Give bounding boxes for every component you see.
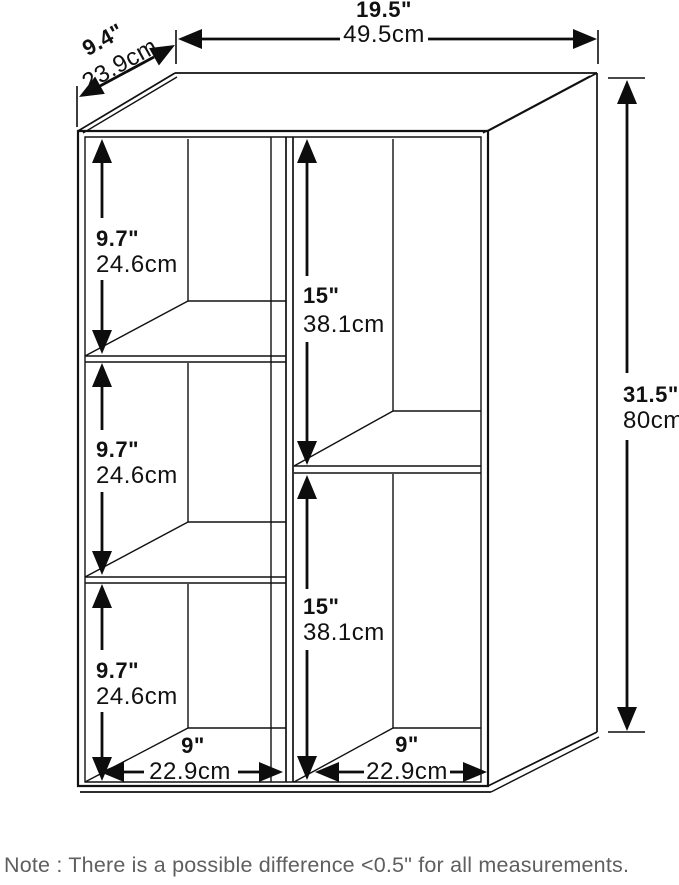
dim-left-cubby-1: 9.7" 24.6cm bbox=[92, 139, 178, 354]
right-column-interior bbox=[294, 139, 481, 782]
left-width-inches-label: 9" bbox=[181, 733, 205, 758]
width-arrowhead-right-icon bbox=[573, 29, 597, 49]
right2-arrowhead-up-icon bbox=[297, 475, 317, 499]
overall-width-inches-label: 19.5" bbox=[356, 0, 412, 22]
right2-arrowhead-down-icon bbox=[297, 756, 317, 780]
side-bottom-edge bbox=[488, 732, 597, 786]
dimension-diagram: 19.5" 49.5cm 9.4" 23.9cm 31.5" 80cm 9.7"… bbox=[0, 0, 679, 885]
right-cubby2-inches-label: 15" bbox=[303, 594, 339, 619]
depth-labels: 9.4" 23.9cm bbox=[64, 7, 163, 96]
left-cubby2-cm-label: 24.6cm bbox=[96, 462, 178, 489]
left-cubby1-cm-label: 24.6cm bbox=[96, 251, 178, 278]
dim-right-cubby-1: 15" 38.1cm bbox=[297, 139, 385, 465]
left1-arrowhead-up-icon bbox=[92, 139, 112, 163]
left-cubby2-inches-label: 9.7" bbox=[96, 437, 139, 462]
right-cubby1-cm-label: 38.1cm bbox=[303, 311, 385, 338]
dim-right-cubby-2: 15" 38.1cm bbox=[297, 475, 385, 780]
side-bottom-edge-inner bbox=[491, 737, 599, 792]
overall-height-cm-label: 80cm bbox=[623, 407, 679, 434]
right-cubby2-cm-label: 38.1cm bbox=[303, 619, 385, 646]
right-cubby1-inches-label: 15" bbox=[303, 283, 339, 308]
dim-left-cubby-3: 9.7" 24.6cm bbox=[92, 584, 178, 781]
height-arrowhead-top-icon bbox=[617, 80, 637, 104]
overall-width-cm-label: 49.5cm bbox=[343, 21, 425, 48]
top-face-right-edge-inner bbox=[483, 76, 590, 133]
left3-arrowhead-up-icon bbox=[92, 584, 112, 608]
left-cubby3-inches-label: 9.7" bbox=[96, 658, 139, 683]
height-arrowhead-bottom-icon bbox=[617, 707, 637, 731]
dim-overall-height: 31.5" 80cm bbox=[608, 78, 679, 732]
left-cubby3-cm-label: 24.6cm bbox=[96, 683, 178, 710]
dim-overall-depth: 9.4" 23.9cm bbox=[64, 7, 175, 127]
right-width-inches-label: 9" bbox=[395, 732, 419, 757]
bottomright-arrowhead-right-icon bbox=[463, 762, 487, 782]
right-width-cm-label: 22.9cm bbox=[366, 758, 448, 785]
dim-overall-width: 19.5" 49.5cm bbox=[176, 0, 598, 64]
dim-left-cubby-2: 9.7" 24.6cm bbox=[92, 363, 178, 575]
left-width-cm-label: 22.9cm bbox=[149, 758, 231, 785]
dim-right-cubby-width: 9" 22.9cm bbox=[315, 732, 487, 785]
left-cubby1-inches-label: 9.7" bbox=[96, 226, 139, 251]
right1-arrowhead-down-icon bbox=[297, 441, 317, 465]
overall-height-inches-label: 31.5" bbox=[623, 382, 679, 407]
bottomright-arrowhead-left-icon bbox=[315, 762, 339, 782]
bookcase-drawing: 19.5" 49.5cm 9.4" 23.9cm 31.5" 80cm 9.7"… bbox=[0, 0, 679, 885]
width-arrowhead-left-icon bbox=[178, 29, 202, 49]
measurement-note: Note : There is a possible difference <0… bbox=[4, 853, 629, 877]
right1-arrowhead-up-icon bbox=[297, 139, 317, 163]
left2-arrowhead-up-icon bbox=[92, 363, 112, 387]
